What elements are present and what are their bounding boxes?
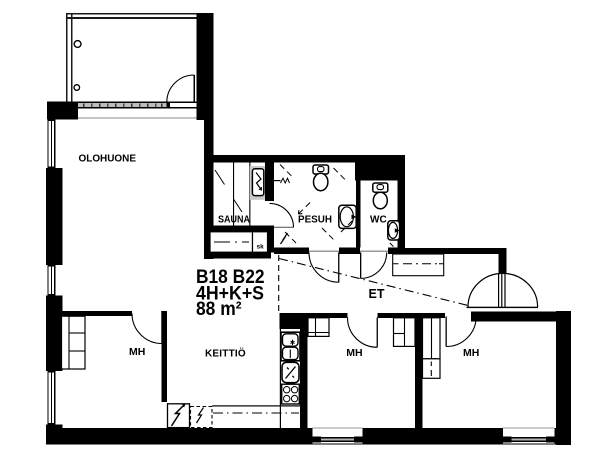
- svg-text:MH: MH: [463, 347, 479, 359]
- svg-text:WC: WC: [370, 215, 387, 226]
- svg-text:SAUNA: SAUNA: [218, 215, 250, 226]
- svg-text:MH: MH: [346, 347, 362, 359]
- svg-text:PESUH: PESUH: [298, 214, 332, 225]
- svg-text:OLOHUONE: OLOHUONE: [79, 152, 137, 164]
- svg-text:sk: sk: [257, 244, 265, 251]
- svg-text:MH: MH: [129, 346, 145, 358]
- svg-text:88 m²: 88 m²: [196, 298, 242, 320]
- svg-text:KEITTIÖ: KEITTIÖ: [205, 346, 246, 359]
- svg-text:ET: ET: [369, 287, 385, 301]
